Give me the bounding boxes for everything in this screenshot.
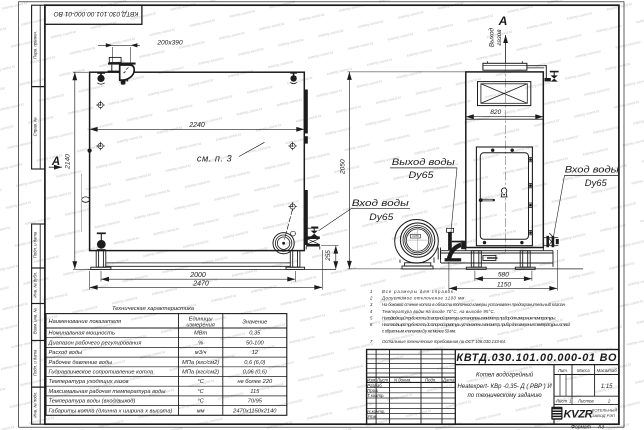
svg-text:Перв. примен.: Перв. примен. [32,31,37,59]
svg-text:МВт: МВт [194,331,208,337]
svg-text:м3/ч: м3/ч [195,350,207,356]
svg-text:Dy65: Dy65 [369,212,394,223]
svg-text:°С: °С [197,379,204,385]
svg-text:Подп.: Подп. [425,377,436,382]
svg-text:МПа (кгс/см2): МПа (кгс/см2) [182,360,219,366]
svg-text:Техническая характеристика: Техническая характеристика [112,306,195,312]
svg-text:N докум.: N докум. [394,377,411,382]
svg-text:KVZR: KVZR [412,235,419,238]
svg-text:°С: °С [197,399,204,405]
svg-text:1:15: 1:15 [601,384,613,390]
svg-text:Диапазон рабочего регулировани: Диапазон рабочего регулирования [48,340,142,346]
svg-text:Лист: Лист [555,398,567,403]
svg-text:200х390: 200х390 [156,39,183,46]
svg-text:Максимальная рабочая температу: Максимальная рабочая температура воды [49,389,167,395]
svg-text:Справ. №: Справ. № [32,117,37,136]
svg-text:Формат: Формат [571,425,591,430]
svg-text:Взам. инв. №: Взам. инв. № [32,308,37,334]
svg-text:%: % [198,340,203,346]
svg-text:2240: 2240 [188,122,205,129]
svg-text:А: А [51,156,60,168]
svg-text:70/95: 70/95 [248,399,263,405]
svg-text:Dy65: Dy65 [585,178,608,189]
svg-text:Масса: Масса [577,368,590,373]
svg-text:Н.контр.: Н.контр. [367,409,385,414]
svg-text:мм: мм [197,408,205,414]
svg-text:Heatexpert- КВр -0,35- Д ( РВР: Heatexpert- КВр -0,35- Д ( РВР ) И [458,384,553,390]
svg-text:0,35: 0,35 [249,331,261,337]
svg-text:0,06 (0,6): 0,06 (0,6) [243,370,267,376]
svg-text:см. п. 3: см. п. 3 [197,153,233,163]
svg-text:50-100: 50-100 [246,340,265,346]
svg-text:Расход воды: Расход воды [49,350,83,356]
svg-text:Наименование показателя: Наименование показателя [49,319,122,325]
svg-text:газов: газов [496,29,503,46]
svg-text:Лист: Лист [376,377,388,382]
svg-text:Котел водогрейный: Котел водогрейный [476,372,534,379]
svg-text:115: 115 [250,389,260,395]
svg-text:Инв. № дубл.: Инв. № дубл. [32,272,37,298]
svg-text:Выход воды: Выход воды [392,157,455,168]
svg-text:КВТД.030.101.00.000-01 ВО: КВТД.030.101.00.000-01 ВО [456,352,617,364]
svg-text:А: А [498,14,508,28]
svg-text:Все размеры для справок.: Все размеры для справок. [382,289,455,294]
svg-text:Температура уходящих газов: Температура уходящих газов [49,379,129,385]
svg-text:1150: 1150 [497,282,512,289]
svg-text:Допустимое отклонение ±100 мм: Допустимое отклонение ±100 мм. [381,296,466,301]
svg-text:Рабочее давление воды: Рабочее давление воды [49,360,114,366]
svg-text:Температура воды (вход/выход): Температура воды (вход/выход) [49,399,136,405]
svg-text:Подп. и дата: Подп. и дата [32,231,37,258]
svg-text:Масштаб: Масштаб [597,368,618,373]
svg-text:МПа (кгс/см2): МПа (кгс/см2) [182,370,219,376]
svg-text:Dy65: Dy65 [409,170,435,181]
svg-text:А3: А3 [597,425,604,430]
svg-text:12: 12 [252,350,259,356]
svg-text:Габариты котла (длинна х ширин: Габариты котла (длинна х ширина х высота… [49,408,173,414]
svg-text:Вход воды: Вход воды [352,198,409,209]
svg-text:KVZR: KVZR [564,408,593,420]
svg-text:Подп. и дата: Подп. и дата [32,349,37,376]
svg-text:°С: °С [197,389,204,395]
svg-text:КВТД.030.101.00.000-01 ВО: КВТД.030.101.00.000-01 ВО [54,10,139,17]
svg-text:2050: 2050 [340,159,347,175]
svg-text:Дата: Дата [442,377,455,382]
svg-text:Лит.: Лит. [557,368,568,373]
svg-text:255: 255 [325,250,332,262]
svg-text:0,6 (6,0): 0,6 (6,0) [244,360,265,366]
svg-text:Номинальная мощность: Номинальная мощность [49,331,115,337]
svg-text:Гидравлическое сопротивление к: Гидравлическое сопротивление котла [49,370,154,376]
svg-text:Температура воды на входе 70°: Температура воды на входе 70°С, на выход… [382,309,495,314]
svg-text:580: 580 [498,272,509,279]
svg-text:Изм.: Изм. [367,377,376,382]
svg-text:2140: 2140 [65,154,72,170]
svg-text:не более 220: не более 220 [237,379,273,385]
svg-text:Остальные технические требован: Остальные технические требования по ОСТ … [382,339,506,344]
svg-text:2470х1150х2140: 2470х1150х2140 [232,408,277,414]
svg-text:ЗАВОД РЭП: ЗАВОД РЭП [592,413,615,418]
svg-text:Значение: Значение [242,319,267,325]
svg-text:2470: 2470 [192,280,209,287]
svg-text:Инв. № подл.: Инв. № подл. [32,392,37,418]
svg-text:КОТЕЛЬНЫЙ: КОТЕЛЬНЫЙ [592,408,617,413]
svg-text:с обратным клапаном Dу не мен: с обратным клапаном Dу не менее 50 мм. [382,329,456,334]
svg-text:На отводящей трубе котла, до з: На отводящей трубе котла, до запорной ар… [382,322,571,327]
svg-text:измерения: измерения [186,322,214,328]
svg-text:Т.контр.: Т.контр. [367,393,384,398]
svg-text:На боковой стенке котла в обла: На боковой стенке котла в области топочн… [382,302,566,307]
svg-text:по техническому заданию: по техническому заданию [468,393,543,399]
svg-text:Листов: Листов [577,398,594,403]
svg-text:Утв.: Утв. [367,414,377,419]
svg-text:Выход: Выход [487,27,495,47]
svg-text:На подводящей трубе котла, до: На подводящей трубе котла, до запорной а… [382,315,556,320]
svg-text:2000: 2000 [189,272,206,279]
svg-text:Вход воды: Вход воды [565,165,619,176]
svg-text:820: 820 [490,109,501,116]
